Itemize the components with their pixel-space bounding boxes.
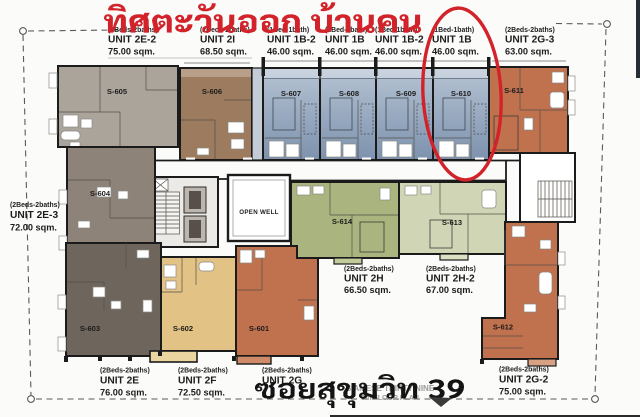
svg-text:UNIT 2I: UNIT 2I [200, 35, 235, 46]
svg-text:S-610: S-610 [451, 89, 471, 98]
svg-text:(2Beds-2baths): (2Beds-2baths) [100, 368, 150, 375]
svg-text:68.50 sqm.: 68.50 sqm. [200, 47, 247, 57]
svg-text:UNIT 2H-2: UNIT 2H-2 [426, 274, 475, 285]
svg-text:(2Beds-2baths): (2Beds-2baths) [262, 368, 312, 375]
svg-text:(2Beds-2baths): (2Beds-2baths) [505, 27, 555, 34]
svg-text:46.00 sqm.: 46.00 sqm. [432, 47, 479, 57]
svg-text:S-607: S-607 [281, 89, 301, 98]
svg-text:UNIT 2G-3: UNIT 2G-3 [505, 35, 555, 46]
svg-text:UNIT 2E-2: UNIT 2E-2 [108, 35, 156, 46]
svg-text:S-603: S-603 [80, 324, 100, 333]
svg-text:S-614: S-614 [332, 217, 353, 226]
svg-text:(2Beds-2baths): (2Beds-2baths) [499, 367, 549, 374]
svg-text:UNIT 1B: UNIT 1B [432, 35, 472, 46]
svg-text:76.00 sqm.: 76.00 sqm. [100, 388, 147, 398]
svg-text:66.50 sqm.: 66.50 sqm. [344, 285, 391, 295]
svg-text:(2Beds-2baths): (2Beds-2baths) [10, 202, 60, 209]
svg-text:46.00 sqm.: 46.00 sqm. [325, 47, 372, 57]
svg-text:67.00 sqm.: 67.00 sqm. [426, 285, 473, 295]
svg-text:S-606: S-606 [202, 87, 222, 96]
svg-text:63.00 sqm.: 63.00 sqm. [505, 47, 552, 57]
svg-text:S-605: S-605 [107, 87, 128, 96]
svg-text:UNIT 1B: UNIT 1B [325, 35, 365, 46]
svg-text:S-608: S-608 [339, 89, 359, 98]
svg-text:OPEN WELL: OPEN WELL [239, 209, 278, 216]
svg-text:72.50 sqm.: 72.50 sqm. [178, 388, 225, 398]
svg-text:S-611: S-611 [504, 86, 525, 95]
svg-text:UNIT 1B-2: UNIT 1B-2 [267, 35, 316, 46]
svg-text:S-604: S-604 [90, 189, 111, 198]
svg-text:UNIT 2E-3: UNIT 2E-3 [10, 210, 58, 221]
svg-text:(2Beds-2baths): (2Beds-2baths) [426, 266, 476, 273]
svg-text:S-602: S-602 [173, 324, 193, 333]
svg-text:(2Beds-2baths): (2Beds-2baths) [344, 266, 394, 273]
svg-text:UNIT 2G-2: UNIT 2G-2 [499, 375, 549, 386]
svg-text:75.00 sqm.: 75.00 sqm. [108, 47, 155, 57]
svg-text:S-612: S-612 [493, 323, 513, 332]
svg-text:S-609: S-609 [396, 89, 416, 98]
svg-text:UNIT 1B-2: UNIT 1B-2 [375, 35, 424, 46]
svg-text:72.00 sqm.: 72.00 sqm. [10, 223, 57, 233]
svg-text:UNIT 2H: UNIT 2H [344, 274, 384, 285]
svg-text:UNIT 2E: UNIT 2E [100, 376, 139, 387]
svg-text:(1Bed-1bath): (1Bed-1bath) [432, 27, 474, 34]
svg-text:46.00 sqm.: 46.00 sqm. [267, 47, 314, 57]
svg-text:UNIT 2F: UNIT 2F [178, 376, 217, 387]
svg-text:S-613: S-613 [442, 218, 462, 227]
svg-text:75.00 sqm.: 75.00 sqm. [499, 387, 546, 397]
svg-text:46.00 sqm.: 46.00 sqm. [375, 47, 422, 57]
svg-text:(2Beds-2baths): (2Beds-2baths) [178, 368, 228, 375]
svg-text:S-601: S-601 [249, 324, 270, 333]
